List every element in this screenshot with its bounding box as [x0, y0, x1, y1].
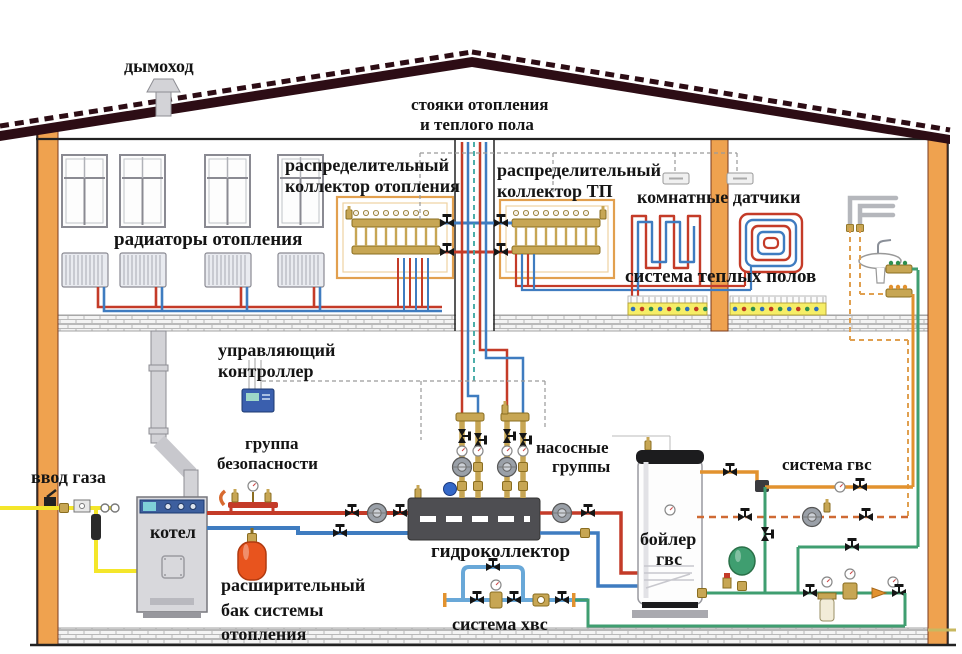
- label-heating-manifold-2: коллектор отопления: [285, 176, 460, 196]
- dhw-boiler: [612, 436, 708, 618]
- label-exp-tank-1: расширительный: [221, 575, 365, 595]
- label-room-sensors: комнатные датчики: [637, 187, 800, 207]
- diagram-canvas: дымоход стояки отопления и теплого пола …: [0, 0, 962, 654]
- radiator-piping: [98, 287, 442, 311]
- label-ufh-manifold-1: распределительный: [497, 160, 661, 180]
- label-safety-1: группа: [245, 434, 299, 453]
- pressure-reducer: [843, 583, 857, 599]
- wall-pillar-middle: [711, 139, 728, 331]
- label-gas-inlet: ввод газа: [31, 467, 106, 487]
- label-controller-2: контроллер: [218, 361, 314, 381]
- water-filter: [820, 599, 834, 621]
- hot-mini-manifold: [886, 289, 912, 297]
- gas-line: [0, 490, 137, 571]
- label-cws-system: система хвс: [452, 614, 548, 634]
- radiator: [120, 253, 166, 287]
- safety-group: [221, 481, 278, 513]
- heating-system-diagram: дымоход стояки отопления и теплого пола …: [0, 0, 962, 654]
- flue: [149, 331, 198, 498]
- label-boiler: котел: [150, 522, 196, 542]
- gas-cock: [44, 497, 56, 506]
- safety-valve: [723, 578, 731, 588]
- label-pumps-1: насосные: [536, 438, 609, 457]
- expansion-tank: [238, 528, 266, 580]
- label-dhw-boiler-1: бойлер: [640, 529, 696, 549]
- label-risers-2: и теплого пола: [420, 115, 534, 134]
- window: [62, 155, 107, 227]
- gas-filter: [91, 514, 101, 540]
- label-dhw-system: система гвс: [782, 455, 872, 474]
- label-pumps-2: группы: [552, 457, 610, 476]
- roof-left: [0, 57, 472, 141]
- label-chimney: дымоход: [124, 56, 194, 76]
- label-ufh-system: система теплых полов: [625, 266, 816, 287]
- label-safety-2: безопасности: [217, 454, 318, 473]
- label-radiators: радиаторы отопления: [114, 229, 302, 250]
- dhw-expansion-tank: [729, 547, 755, 575]
- first-floor: [0, 331, 956, 630]
- towel-warmer: [850, 198, 896, 228]
- radiator: [278, 253, 324, 287]
- bathroom: [846, 198, 918, 297]
- window: [120, 155, 165, 227]
- primary-circuit: [207, 481, 410, 580]
- check-valve: [872, 588, 886, 598]
- radiator: [62, 253, 108, 287]
- label-hydro-collector: гидроколлектор: [431, 541, 570, 562]
- roof-shingles-left: [0, 52, 472, 126]
- window: [205, 155, 250, 227]
- ufh-spiral-loop: [740, 214, 802, 272]
- radiator: [205, 253, 251, 287]
- pump-groups: [453, 401, 531, 498]
- label-heating-manifold-1: распределительный: [285, 155, 449, 175]
- gas-boiler: [137, 497, 207, 618]
- label-exp-tank-2: бак системы: [221, 600, 323, 620]
- wall-right: [928, 139, 947, 645]
- label-risers-1: стояки отопления: [411, 95, 548, 114]
- valve-ball-blue: [444, 483, 457, 496]
- roof-shingles-right: [472, 52, 950, 130]
- label-ufh-manifold-2: коллектор ТП: [497, 181, 613, 201]
- hydro-collector: [408, 483, 540, 541]
- wall-left: [38, 128, 58, 645]
- label-exp-tank-3: отопления: [221, 624, 307, 644]
- label-dhw-boiler-2: гвс: [656, 549, 682, 569]
- heating-manifold: [337, 197, 453, 311]
- cold-mini-manifold: [886, 265, 912, 273]
- faucet: [878, 240, 891, 253]
- label-controller-1: управляющий: [218, 340, 335, 360]
